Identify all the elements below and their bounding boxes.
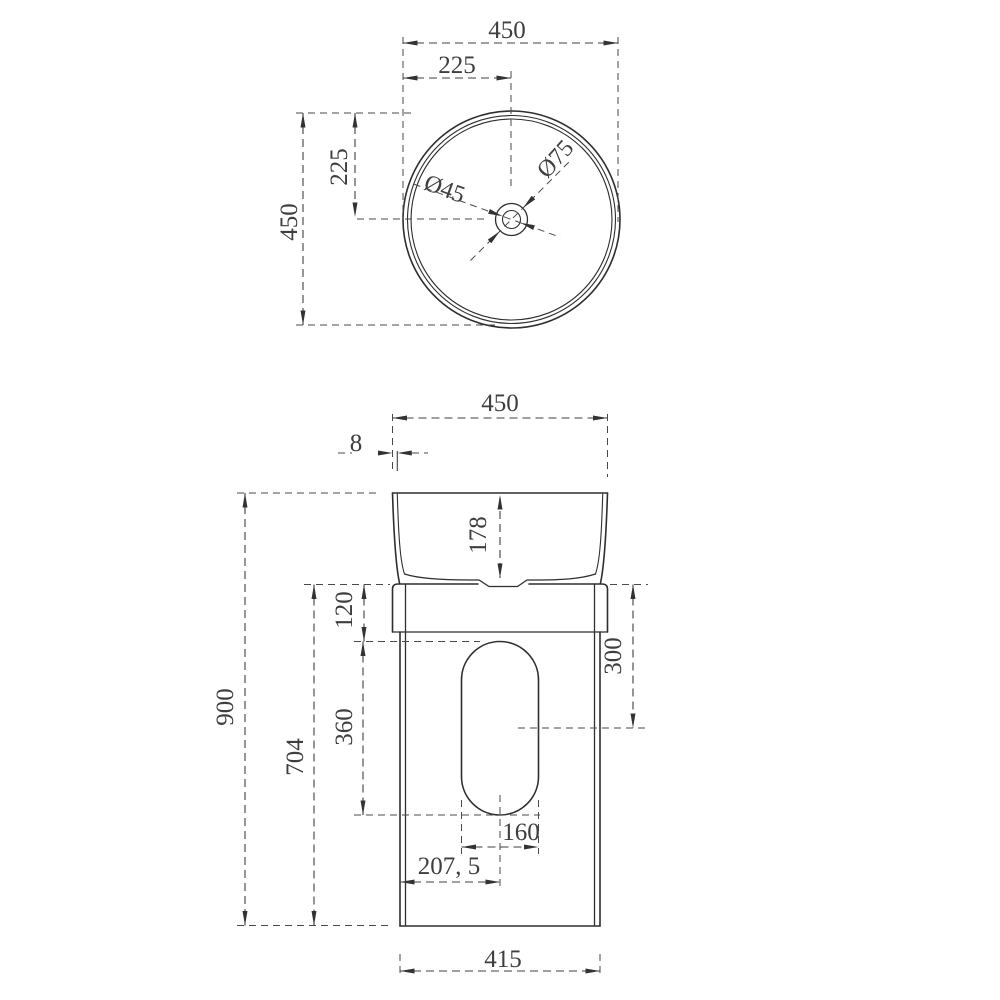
drain-outer-dia-label: Ø75 xyxy=(532,135,579,183)
cutout-center-x-dim-label: 207, 5 xyxy=(418,853,481,880)
basin-left-wall-inner xyxy=(397,494,404,574)
cutout-center-offset-dim-label: 300 xyxy=(600,637,627,675)
front-view: 450 8 178 900 704 120 360 300 160 207, 5… xyxy=(212,390,648,976)
collar-right xyxy=(529,584,608,632)
pedestal-height-dim-label: 704 xyxy=(282,738,309,776)
base-width-dim-label: 415 xyxy=(484,946,522,973)
basin-right-wall-outer xyxy=(601,493,608,583)
top-height-dim-label: 450 xyxy=(276,203,303,241)
front-view-extension-lines xyxy=(237,414,648,976)
front-view-arrowheads xyxy=(243,416,636,974)
front-view-dimension-lines xyxy=(245,418,633,971)
cutout-height-dim-label: 360 xyxy=(331,708,358,746)
basin-right-wall-inner xyxy=(596,494,603,574)
top-half-width-dim-label: 225 xyxy=(438,52,476,79)
pedestal-cutout-oval xyxy=(462,642,539,816)
top-view: 450 225 450 225 Ø45 Ø75 xyxy=(276,17,620,328)
cutout-width-dim-label: 160 xyxy=(502,819,540,846)
top-width-dim-label: 450 xyxy=(488,17,526,44)
drain-inner-dia-label: Ø45 xyxy=(421,170,469,209)
cutout-top-offset-dim-label: 120 xyxy=(331,591,358,629)
technical-drawing-page: 450 225 450 225 Ø45 Ø75 xyxy=(0,0,1000,1000)
basin-depth-dim-label: 178 xyxy=(465,516,492,554)
rim-thickness-dim-label: 8 xyxy=(350,430,363,457)
overall-height-dim-label: 900 xyxy=(212,688,239,726)
front-top-width-dim-label: 450 xyxy=(481,390,519,417)
technical-drawing-canvas: 450 225 450 225 Ø45 Ø75 xyxy=(0,0,1000,1000)
top-half-height-dim-label: 225 xyxy=(326,148,353,186)
basin-left-wall-outer xyxy=(393,493,400,583)
